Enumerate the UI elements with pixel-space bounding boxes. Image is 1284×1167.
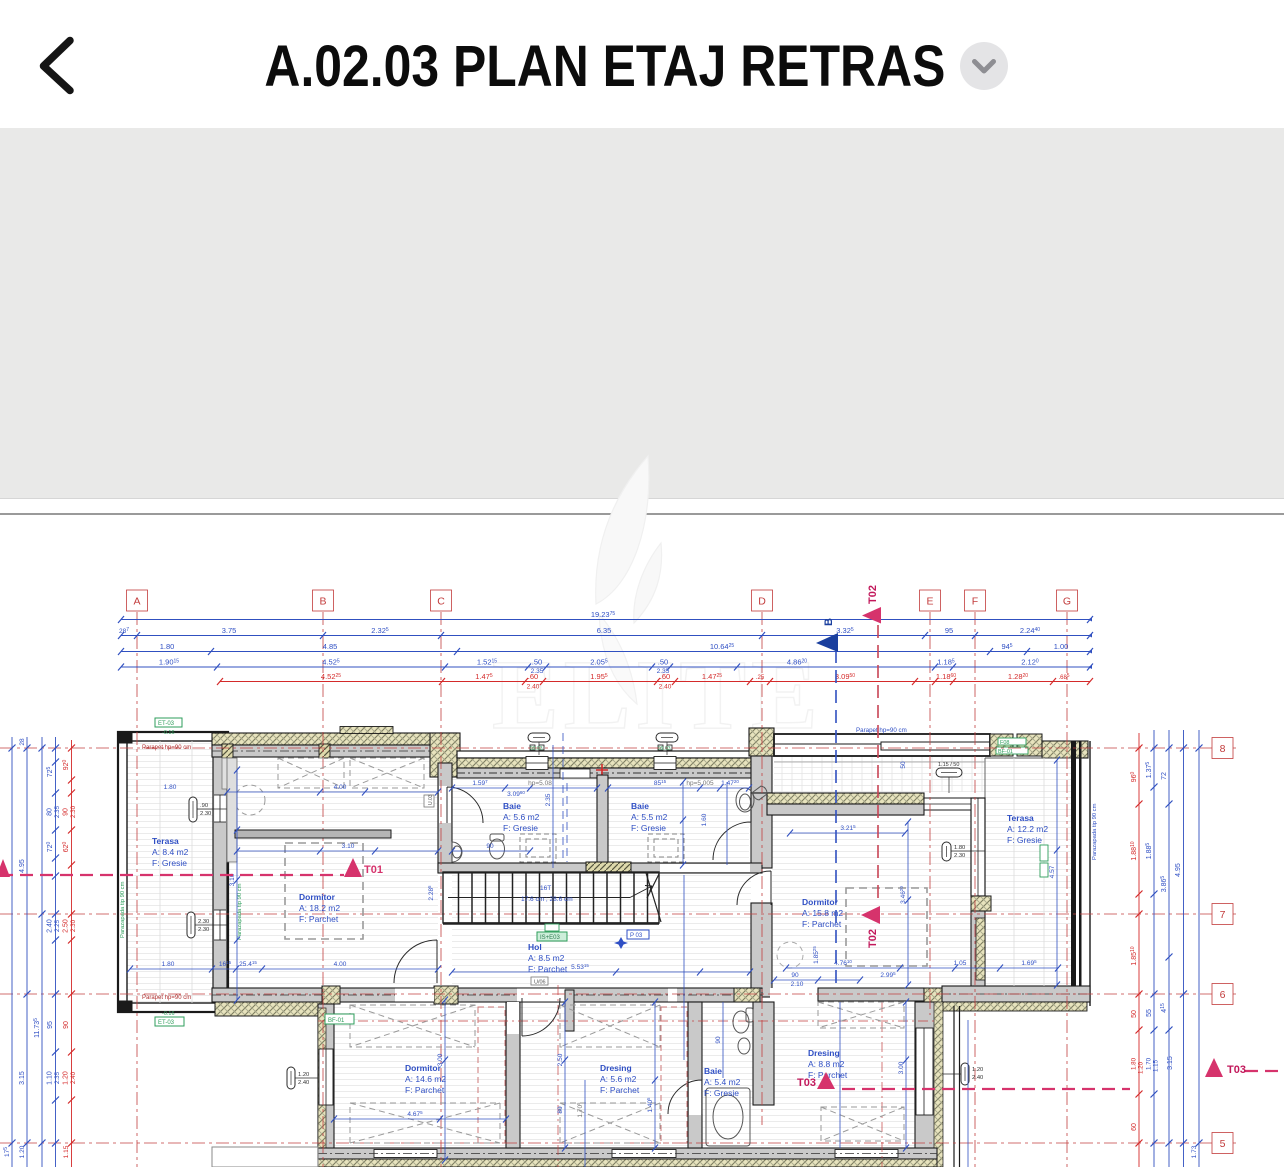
svg-text:99.03: 99.03: [658, 746, 671, 752]
svg-text:4.5225: 4.5225: [321, 672, 341, 681]
svg-text:2.325: 2.325: [371, 626, 389, 635]
svg-text:1.20: 1.20: [63, 1071, 70, 1085]
svg-text:1.8510: 1.8510: [1130, 946, 1138, 965]
svg-text:90: 90: [791, 972, 799, 979]
svg-text:945: 945: [1001, 642, 1012, 651]
svg-text:8: 8: [1220, 743, 1226, 755]
svg-text:B: B: [823, 618, 835, 626]
svg-text:5: 5: [1220, 1138, 1226, 1150]
svg-text:U.03: U.03: [428, 794, 434, 805]
svg-text:80: 80: [47, 808, 54, 816]
svg-text:175: 175: [3, 1147, 11, 1157]
svg-text:hp=5.005: hp=5.005: [686, 780, 714, 787]
svg-text:Dresing: Dresing: [600, 1063, 632, 1073]
svg-text:T02: T02: [867, 585, 879, 604]
svg-text:725: 725: [46, 766, 54, 777]
svg-text:A: A: [133, 596, 140, 608]
svg-text:6: 6: [1220, 989, 1226, 1001]
svg-text:2.35: 2.35: [545, 793, 552, 806]
svg-text:2.30: 2.30: [954, 853, 965, 859]
svg-text:F: Gresie: F: Gresie: [1007, 835, 1042, 845]
svg-text:T02: T02: [867, 929, 879, 948]
svg-text:1.9015: 1.9015: [159, 658, 179, 667]
svg-text:99.03: 99.03: [530, 746, 543, 752]
svg-text:3.10: 3.10: [342, 843, 355, 850]
svg-text:19.2375: 19.2375: [591, 610, 616, 619]
svg-text:Parapet hp=90 cm: Parapet hp=90 cm: [856, 727, 907, 734]
svg-text:2.120: 2.120: [1021, 658, 1039, 667]
svg-text:1.60: 1.60: [701, 813, 708, 826]
svg-text:Dresing: Dresing: [808, 1048, 840, 1058]
svg-text:1.1860: 1.1860: [936, 672, 956, 681]
svg-text:F: Parchet: F: Parchet: [405, 1085, 445, 1095]
svg-text:1.70: 1.70: [1146, 1057, 1153, 1070]
svg-text:95: 95: [945, 626, 953, 635]
svg-text:1.15 / 50: 1.15 / 50: [938, 762, 959, 768]
svg-text:4.85: 4.85: [323, 642, 338, 651]
svg-text:Baie: Baie: [631, 801, 649, 811]
svg-text:90: 90: [63, 1021, 70, 1029]
svg-text:A: 8.5 m2: A: 8.5 m2: [528, 953, 565, 963]
svg-text:4.95: 4.95: [1175, 863, 1182, 877]
svg-text:.25: .25: [756, 675, 765, 681]
svg-text:-0.16: -0.16: [162, 1011, 175, 1017]
svg-text:1.15: 1.15: [1153, 1059, 1160, 1072]
svg-text:1.00: 1.00: [1054, 642, 1069, 651]
svg-text:1.80: 1.80: [162, 961, 175, 968]
svg-text:A: 15.8 m2: A: 15.8 m2: [802, 908, 843, 918]
svg-text:T03: T03: [1227, 1064, 1246, 1076]
svg-text:F: Gresie: F: Gresie: [631, 823, 666, 833]
svg-text:ET-03: ET-03: [158, 1020, 175, 1026]
svg-text:1.185: 1.185: [937, 658, 955, 667]
svg-text:50: 50: [1131, 1010, 1138, 1018]
svg-text:F: Parchet: F: Parchet: [600, 1085, 640, 1095]
svg-text:E: E: [926, 596, 933, 608]
svg-text:Terasa: Terasa: [1007, 813, 1034, 823]
svg-text:B: B: [319, 596, 326, 608]
svg-text:2.35: 2.35: [54, 1071, 61, 1084]
svg-text:1.20: 1.20: [1138, 1061, 1145, 1074]
svg-text:BF-01: BF-01: [998, 749, 1013, 755]
svg-text:1.80: 1.80: [160, 642, 175, 651]
svg-text:4.00: 4.00: [334, 961, 347, 968]
svg-text:hp=5.08: hp=5.08: [528, 780, 552, 787]
svg-text:3.00: 3.00: [898, 1061, 905, 1074]
svg-text:1.15: 1.15: [63, 1145, 70, 1158]
svg-text:3.00: 3.00: [437, 1053, 444, 1066]
svg-text:.60: .60: [528, 672, 538, 681]
svg-text:A: 8.8 m2: A: 8.8 m2: [808, 1059, 845, 1069]
svg-text:4.95: 4.95: [19, 859, 26, 873]
svg-text:Parapet hp=90 cm: Parapet hp=90 cm: [142, 995, 191, 1001]
svg-text:A: 18.2 m2: A: 18.2 m2: [299, 903, 340, 913]
svg-text:2.10: 2.10: [791, 981, 804, 988]
svg-text:Parazapada tip 90 cm: Parazapada tip 90 cm: [1092, 803, 1098, 860]
svg-text:3.75: 3.75: [222, 626, 237, 635]
svg-text:6.35: 6.35: [597, 626, 612, 635]
svg-text:4.525: 4.525: [322, 658, 340, 667]
svg-text:90: 90: [486, 843, 494, 850]
svg-text:F: Gresie: F: Gresie: [152, 858, 187, 868]
svg-text:2.50: 2.50: [557, 1053, 564, 1066]
svg-text:.685: .685: [1058, 673, 1069, 681]
svg-text:.60: .60: [660, 672, 670, 681]
svg-text:415: 415: [1160, 1003, 1168, 1013]
svg-text:A: 5.5 m2: A: 5.5 m2: [631, 812, 668, 822]
svg-text:4.00: 4.00: [334, 784, 347, 791]
svg-text:1.20: 1.20: [19, 1145, 26, 1158]
svg-text:2.40: 2.40: [70, 1071, 77, 1084]
svg-text:1.885: 1.885: [1145, 843, 1153, 860]
svg-text:2.2440: 2.2440: [1020, 626, 1040, 635]
svg-text:A: 12.2 m2: A: 12.2 m2: [1007, 824, 1048, 834]
svg-text:A: 14.6 m2: A: 14.6 m2: [405, 1074, 446, 1084]
svg-text:.50: .50: [658, 658, 668, 667]
svg-text:F: F: [972, 596, 978, 608]
svg-text:80: 80: [557, 1106, 564, 1114]
svg-text:T01: T01: [364, 864, 383, 876]
svg-text:60: 60: [1131, 1123, 1138, 1131]
svg-text:G: G: [1063, 596, 1071, 608]
svg-text:90: 90: [63, 808, 70, 816]
svg-text:2.30: 2.30: [198, 919, 209, 925]
svg-text:1.80: 1.80: [954, 845, 965, 851]
svg-text:F: Gresie: F: Gresie: [503, 823, 538, 833]
svg-text:1.05: 1.05: [954, 960, 967, 967]
svg-text:A: 5.6 m2: A: 5.6 m2: [600, 1074, 637, 1084]
svg-text:1.20: 1.20: [298, 1072, 309, 1078]
svg-text:1.80: 1.80: [1131, 1057, 1138, 1070]
svg-text:2.30: 2.30: [198, 927, 209, 933]
svg-text:55: 55: [1146, 1009, 1153, 1017]
svg-text:IS+E03: IS+E03: [540, 935, 561, 941]
svg-text:1.73: 1.73: [1191, 1145, 1198, 1158]
svg-text:720: 720: [46, 841, 54, 852]
svg-text:2.40: 2.40: [659, 684, 672, 691]
svg-text:50: 50: [900, 761, 907, 769]
svg-text:P 03: P 03: [630, 933, 643, 939]
svg-text:2.40: 2.40: [47, 919, 54, 933]
svg-text:Parapet hp=90 cm: Parapet hp=90 cm: [142, 745, 191, 751]
svg-text:620: 620: [62, 841, 70, 852]
svg-text:920: 920: [62, 759, 70, 770]
svg-text:2.40: 2.40: [527, 684, 540, 691]
svg-text:F: Gresie: F: Gresie: [704, 1088, 739, 1098]
svg-text:A: 5.4 m2: A: 5.4 m2: [704, 1077, 741, 1087]
svg-text:1.8810: 1.8810: [1130, 841, 1138, 860]
svg-text:-0.16: -0.16: [162, 730, 175, 736]
svg-text:Baie: Baie: [704, 1066, 722, 1076]
svg-text:Dormitor: Dormitor: [802, 897, 839, 907]
svg-text:3.0950: 3.0950: [835, 672, 855, 681]
svg-text:17.6 cm ; 28.6 cm: 17.6 cm ; 28.6 cm: [521, 896, 573, 903]
svg-text:F: Parchet: F: Parchet: [528, 964, 568, 974]
svg-text:3.865: 3.865: [1160, 876, 1168, 893]
svg-text:2.50: 2.50: [63, 919, 70, 933]
svg-text:A: 8.4 m2: A: 8.4 m2: [152, 847, 189, 857]
svg-text:3.15: 3.15: [1167, 1056, 1174, 1070]
svg-text:ET-03: ET-03: [158, 721, 175, 727]
svg-text:F: Parchet: F: Parchet: [299, 914, 339, 924]
svg-text:Parazapada tip 90 cm: Parazapada tip 90 cm: [237, 883, 243, 940]
svg-text:11.735: 11.735: [33, 1018, 41, 1038]
svg-text:U/06: U/06: [534, 980, 546, 986]
svg-text:1.375: 1.375: [1145, 762, 1153, 779]
svg-text:2.30: 2.30: [70, 919, 77, 932]
svg-text:C: C: [437, 596, 445, 608]
svg-text:7: 7: [1220, 909, 1226, 921]
svg-text:3.15: 3.15: [19, 1071, 26, 1085]
svg-text:.50: .50: [532, 658, 542, 667]
svg-text:2.30: 2.30: [200, 811, 211, 817]
svg-text:90: 90: [715, 1036, 722, 1044]
svg-text:A: 5.6 m2: A: 5.6 m2: [503, 812, 540, 822]
svg-text:2.25: 2.25: [54, 919, 61, 932]
svg-text:Terasa: Terasa: [152, 836, 179, 846]
svg-text:16T: 16T: [540, 885, 551, 892]
svg-text:Baie: Baie: [503, 801, 521, 811]
svg-text:D: D: [758, 596, 766, 608]
svg-text:95: 95: [47, 1021, 54, 1029]
svg-text:4.57: 4.57: [1049, 865, 1056, 878]
svg-text:T03: T03: [797, 1077, 816, 1089]
svg-text:2.30: 2.30: [70, 805, 77, 818]
svg-text:960: 960: [1130, 771, 1138, 782]
svg-text:Dormitor: Dormitor: [299, 892, 336, 902]
svg-text:2.40: 2.40: [972, 1075, 983, 1081]
svg-text:3.325: 3.325: [836, 626, 854, 635]
svg-text:1.20: 1.20: [972, 1067, 983, 1073]
svg-text:1.10: 1.10: [47, 1071, 54, 1085]
svg-text:Hol: Hol: [528, 942, 542, 952]
svg-text:1.80: 1.80: [164, 784, 177, 791]
svg-text:1.2820: 1.2820: [1008, 672, 1028, 681]
svg-text:287: 287: [119, 627, 129, 635]
svg-text:28: 28: [19, 738, 26, 746]
svg-text:2.40: 2.40: [298, 1080, 309, 1086]
svg-text:Parazapada tip 90 cm: Parazapada tip 90 cm: [120, 881, 126, 938]
svg-text:72: 72: [1161, 772, 1168, 780]
svg-text:1.475: 1.475: [475, 672, 493, 681]
svg-text:F08: F08: [1000, 740, 1009, 746]
svg-text:.90: .90: [200, 803, 208, 809]
svg-text:2.35: 2.35: [54, 805, 61, 818]
svg-text:BF-01: BF-01: [328, 1018, 345, 1024]
